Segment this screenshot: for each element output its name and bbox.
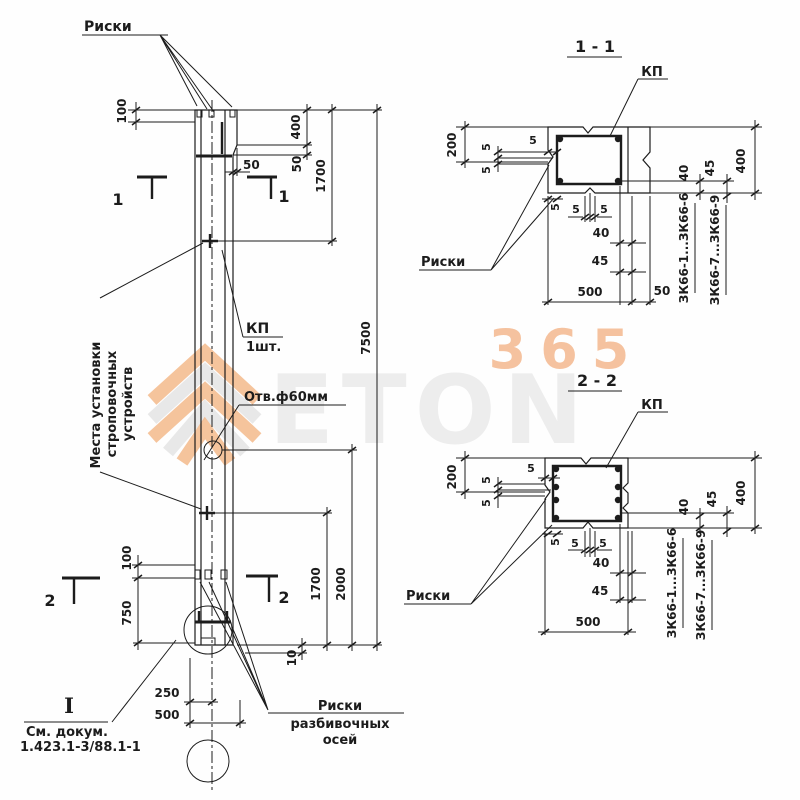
s2-dim-5-top: 5 — [527, 462, 535, 475]
bottom-notch — [201, 638, 215, 645]
strop-note-line1: Места установки — [89, 342, 104, 469]
watermark-digits: 365 — [489, 318, 644, 381]
s2-dim-5-bottom-c: 5 — [599, 537, 607, 550]
s2-dim-400-right: 400 — [734, 480, 748, 505]
s2-dim-45-right: 45 — [705, 491, 719, 508]
strop-note-line2: строповочных — [105, 350, 120, 457]
section-mark-1-right: 1 — [278, 187, 289, 206]
s2-dim-5-left-b: 5 — [480, 499, 493, 507]
s1-dim-50: 50 — [654, 284, 671, 298]
section-1-1: 1 - 1 КП Риски 200 5 5 5 40 45 400 5 5 5… — [419, 37, 762, 305]
dim-50-step: 50 — [243, 158, 260, 172]
section-2-2-dim-lines — [456, 451, 762, 635]
section-2-2-rebar — [553, 466, 621, 521]
kp-qty-label: 1шт. — [246, 340, 281, 355]
s2-dim-45-bottom: 45 — [592, 584, 609, 598]
drawing-canvas: ETON 365 — [0, 0, 800, 800]
s1-dim-5-bottom-a: 5 — [549, 203, 562, 211]
s1-dim-40-bottom: 40 — [593, 226, 610, 240]
axes-riski-line3: осей — [323, 733, 358, 748]
s1-dim-5-bottom-b: 5 — [572, 203, 580, 216]
dim-400: 400 — [289, 114, 303, 139]
s1-dim-5-left-a: 5 — [480, 143, 493, 151]
axes-riski-line2: разбивочных — [290, 717, 390, 732]
dim-2000: 2000 — [334, 567, 348, 600]
section-1-1-kp-label: КП — [641, 65, 663, 80]
s1-dim-45-right: 45 — [703, 160, 717, 177]
dim-50-right: 50 — [290, 156, 304, 173]
section-1-1-stirrup — [557, 136, 621, 184]
dim-750: 750 — [120, 600, 134, 625]
see-doc-label: См. докум. — [26, 725, 108, 740]
s1-dim-200: 200 — [445, 132, 459, 157]
s1-dim-5-left-b: 5 — [480, 166, 493, 174]
dim-7500: 7500 — [359, 321, 373, 354]
s2-series-b-label: ЗК66-7...ЗК66-9 — [694, 530, 708, 640]
s1-dim-45-bottom: 45 — [592, 254, 609, 268]
riski-label-top: Риски — [84, 19, 132, 35]
dim-10: 10 — [285, 650, 299, 667]
axes-riski-line1: Риски — [318, 699, 362, 714]
section-mark-2-left: 2 — [44, 591, 55, 610]
strop-note-line3: устройств — [121, 367, 136, 442]
s1-series-b-label: ЗК66-7...ЗК66-9 — [708, 195, 722, 305]
dim-100-bottom: 100 — [120, 545, 134, 570]
section-2-2-ticks — [461, 455, 759, 635]
s1-dim-500: 500 — [577, 285, 602, 299]
dim-1700-bottom: 1700 — [309, 567, 323, 600]
s1-dim-5-top: 5 — [529, 134, 537, 147]
section-mark-2-right: 2 — [278, 588, 289, 607]
base-circle — [187, 740, 229, 782]
s2-dim-5-bottom-b: 5 — [571, 537, 579, 550]
s1-dim-400-right: 400 — [734, 148, 748, 173]
dim-250: 250 — [154, 686, 179, 700]
s2-dim-5-left-a: 5 — [480, 476, 493, 484]
dim-1700-top: 1700 — [314, 159, 328, 192]
s2-dim-200: 200 — [445, 464, 459, 489]
detail-mark: I — [64, 693, 74, 718]
section-2-2-kp-label: КП — [641, 398, 663, 413]
watermark: ETON 365 — [152, 318, 643, 466]
s2-series-a-label: ЗК66-1...ЗК66-6 — [665, 528, 679, 638]
dim-500-bottom: 500 — [154, 708, 179, 722]
watermark-logo-icon — [152, 352, 257, 462]
section-1-1-title: 1 - 1 — [575, 37, 615, 56]
section-2-2-stirrup — [553, 466, 621, 521]
s1-dim-5-bottom-c: 5 — [600, 203, 608, 216]
column-drawing: ETON 365 — [0, 0, 800, 800]
s2-dim-40-right: 40 — [677, 499, 691, 516]
section-mark-1-left: 1 — [112, 190, 123, 209]
s2-dim-40-bottom: 40 — [593, 556, 610, 570]
section-1-1-rebar — [557, 136, 621, 184]
section-2-2-title: 2 - 2 — [577, 371, 617, 390]
section-1-1-riski-label: Риски — [421, 255, 465, 270]
kp-label: КП — [246, 321, 269, 337]
hole-label: Отв.ф60мм — [244, 390, 328, 405]
s1-dim-40-right: 40 — [677, 165, 691, 182]
s2-dim-500: 500 — [575, 615, 600, 629]
s2-dim-5-bottom-a: 5 — [549, 538, 562, 546]
dim-100-top: 100 — [115, 98, 129, 123]
s1-series-a-label: ЗК66-1...ЗК66-6 — [677, 193, 691, 303]
section-2-2-riski-label: Риски — [406, 589, 450, 604]
doc-number-label: 1.423.1-3/88.1-1 — [20, 740, 141, 755]
